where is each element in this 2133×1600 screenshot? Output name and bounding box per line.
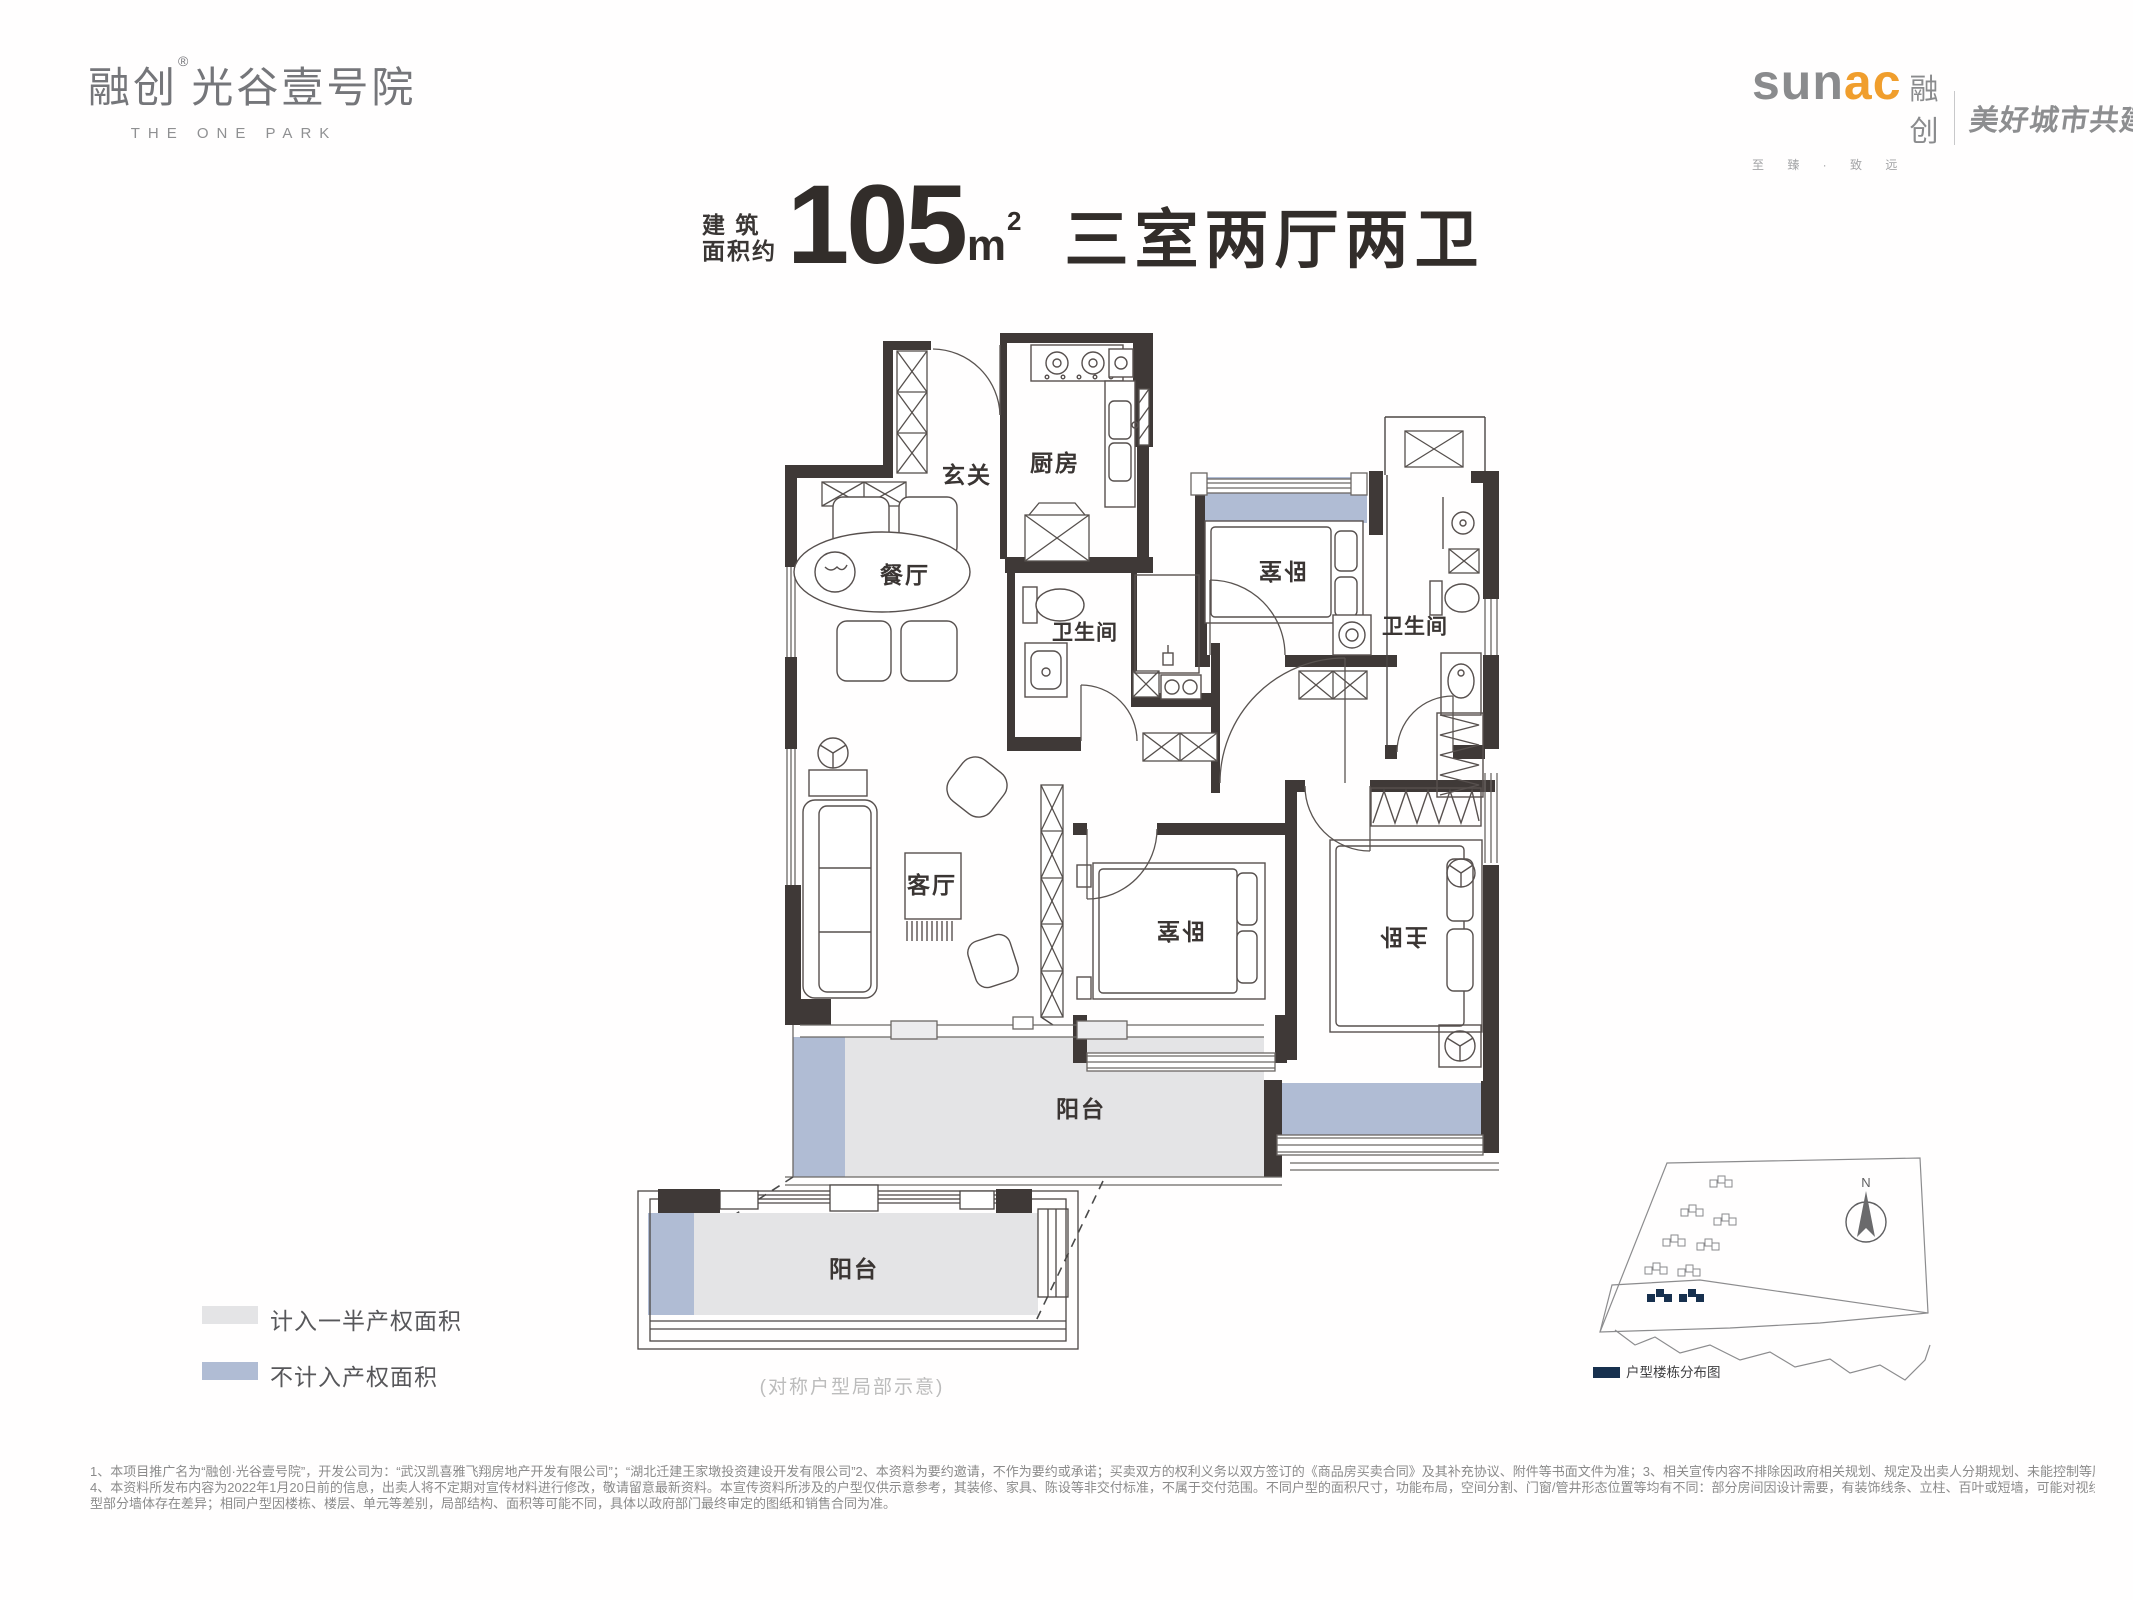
layout-summary: 三室两厅两卫: [1064, 211, 1484, 270]
registered-mark: ®: [178, 53, 191, 69]
site-legend-swatch: [1593, 1367, 1620, 1378]
sunac-slogan: 至 臻 · 致 远: [1752, 156, 1939, 173]
site-plan: N 户型楼栋分布图: [1580, 1145, 2030, 1395]
balcony-detail-caption: (对称户型局部示意): [760, 1376, 945, 1398]
flyer-page: 融创®光谷壹号院 THE ONE PARK sunac 融创 至 臻 · 致 远…: [0, 0, 2133, 1600]
disclaimer: 1、本项目推广名为“融创·光谷壹号院”，开发公司为：“武汉凯喜雅飞翔房地产开发有…: [90, 1464, 2095, 1512]
disclaimer-line-3: 型部分墙体存在差异；相同户型因楼栋、楼层、单元等差别，局部结构、面积等可能不同，…: [90, 1496, 2095, 1512]
unit-headline: 建 筑 面积约 105 m2 三室两厅两卫: [702, 178, 1484, 270]
legend-label-excluded-area: 不计入产权面积: [270, 1358, 438, 1392]
legend-label-half-area: 计入一半产权面积: [270, 1302, 462, 1336]
sunac-accent: ac: [1844, 54, 1902, 110]
site-buildings: [1645, 1176, 1736, 1276]
legend-swatch-excluded-area: [202, 1362, 258, 1380]
divider: [1954, 91, 1955, 145]
room-label-bedroom-1: 卧室: [1257, 558, 1307, 584]
area-prefix: 建 筑 面积约: [702, 212, 777, 264]
compass-icon: N: [1846, 1175, 1886, 1242]
sunac-tagline: 美好城市共建者: [1967, 97, 2133, 139]
room-label-dining: 餐厅: [880, 562, 930, 588]
room-label-kitchen: 厨房: [1030, 450, 1080, 476]
floor-plan: 玄关 厨房 餐厅 卫生间 卫生间 卧室 卧室 主卧 客厅 阳台: [630, 325, 1545, 1420]
site-buildings-highlighted: [1647, 1289, 1704, 1302]
room-label-bathroom-1: 卫生间: [1052, 621, 1118, 645]
developer-logo: sunac 融创 至 臻 · 致 远 美好城市共建者: [1752, 62, 2133, 173]
area-unit: m2: [967, 224, 1021, 268]
sunac-wordmark: sunac 融创 至 臻 · 致 远: [1752, 62, 1939, 173]
area-value: 105: [787, 180, 965, 270]
room-label-living: 客厅: [907, 872, 957, 898]
disclaimer-line-2: 4、本资料所发布内容为2022年1月20日前的信息，出卖人将不定期对宣传材料进行…: [90, 1480, 2095, 1496]
project-logo-subtitle: THE ONE PARK: [88, 125, 380, 142]
room-label-master-bedroom: 主卧: [1378, 924, 1428, 950]
disclaimer-line-1: 1、本项目推广名为“融创·光谷壹号院”，开发公司为：“武汉凯喜雅飞翔房地产开发有…: [90, 1464, 2095, 1480]
project-logo: 融创®光谷壹号院 THE ONE PARK: [88, 54, 388, 142]
balcony-detail-plan: 阳台 (对称户型局部示意): [638, 1177, 1103, 1398]
room-label-balcony-detail: 阳台: [829, 1256, 879, 1282]
room-label-foyer: 玄关: [942, 462, 992, 488]
main-unit-plan: 玄关 厨房 餐厅 卫生间 卫生间 卧室 卧室 主卧 客厅 阳台: [785, 333, 1499, 1185]
room-label-bathroom-2: 卫生间: [1382, 615, 1448, 639]
room-label-bedroom-2: 卧室: [1155, 918, 1205, 944]
legend-swatch-half-area: [202, 1306, 258, 1324]
site-legend-label: 户型楼栋分布图: [1626, 1364, 1721, 1380]
project-logo-text: 融创®光谷壹号院: [88, 54, 388, 115]
room-label-balcony: 阳台: [1056, 1096, 1106, 1122]
svg-text:N: N: [1861, 1175, 1870, 1190]
